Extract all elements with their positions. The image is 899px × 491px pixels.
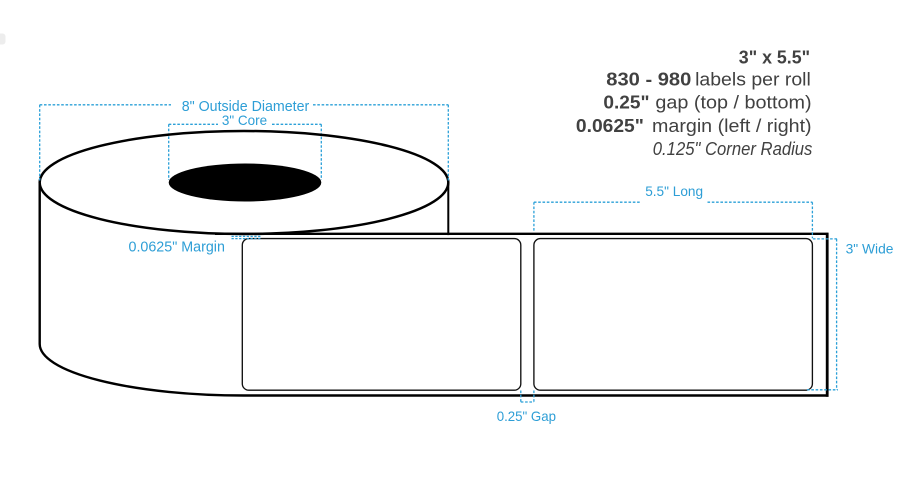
svg-text:margin (left / right): margin (left / right) — [652, 116, 812, 136]
svg-text:830 - 980: 830 - 980 — [606, 70, 691, 90]
svg-text:3" x 5.5": 3" x 5.5" — [739, 48, 810, 68]
svg-text:gap (top / bottom): gap (top / bottom) — [655, 93, 811, 113]
svg-text:0.25": 0.25" — [603, 93, 649, 113]
svg-text:5.5" Long: 5.5" Long — [645, 183, 703, 199]
svg-text:3" Wide: 3" Wide — [846, 241, 894, 257]
svg-text:0.25" Gap: 0.25" Gap — [497, 408, 556, 424]
svg-text:0.125" Corner Radius: 0.125" Corner Radius — [653, 139, 813, 159]
svg-text:labels per roll: labels per roll — [695, 70, 811, 90]
svg-text:3" Core: 3" Core — [222, 112, 267, 128]
svg-text:0.0625" Margin: 0.0625" Margin — [129, 239, 225, 255]
svg-text:0.0625": 0.0625" — [576, 116, 644, 136]
